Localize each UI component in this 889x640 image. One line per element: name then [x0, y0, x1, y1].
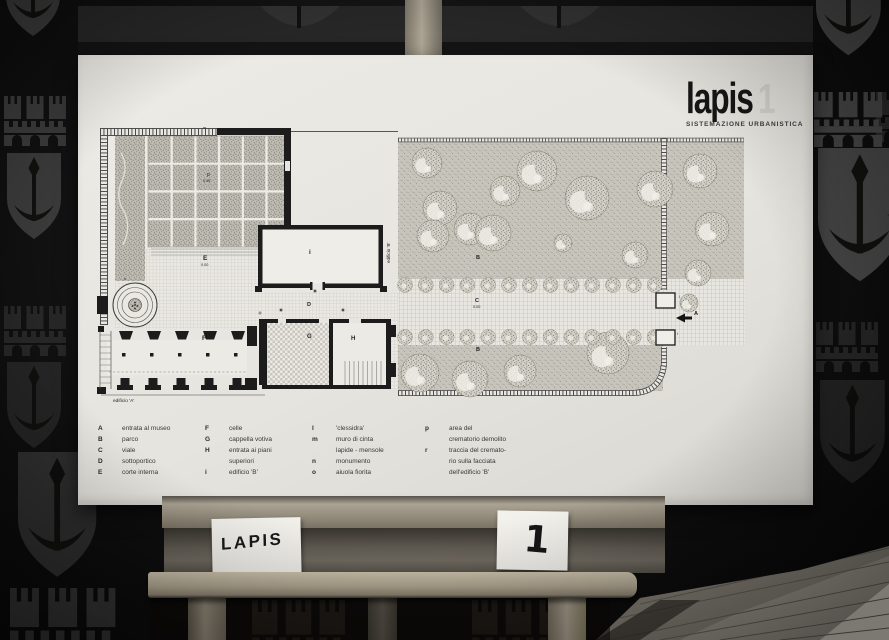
plan-label: i	[309, 250, 311, 257]
easel-leg-center	[368, 594, 397, 640]
plan-label: m	[203, 126, 206, 130]
legend-column: Aentrata al museoBparcoCvialeDsottoporti…	[98, 423, 204, 478]
legend-text: edificio 'B'	[229, 467, 258, 478]
legend-key: F	[205, 423, 229, 434]
plan-label: B	[476, 256, 480, 262]
legend-key: E	[98, 467, 122, 478]
legend: Aentrata al museoBparcoCvialeDsottoporti…	[98, 423, 798, 501]
plan-label: edificio 'B'	[387, 243, 392, 263]
label-card-lapis: LAPIS	[211, 517, 301, 574]
plan-label: l	[677, 333, 678, 337]
legend-key: m	[312, 434, 336, 456]
plan-label: n	[124, 278, 126, 282]
plan-label: E	[203, 256, 207, 263]
legend-row: Ecorte interna	[98, 467, 204, 478]
plan-label: l	[679, 296, 680, 300]
wallpaper-top-band	[78, 6, 813, 54]
plan-label: 0.00	[201, 264, 208, 268]
legend-row: l'clessidra'	[312, 423, 418, 434]
legend-text: monumento	[336, 456, 370, 467]
legend-text: parco	[122, 434, 138, 445]
legend-key: C	[98, 445, 122, 456]
legend-text: entrata al museo	[122, 423, 170, 434]
legend-text: corte interna	[122, 467, 158, 478]
legend-column: FcelleGcappella votivaHentrata ai piani …	[205, 423, 311, 478]
legend-key: G	[205, 434, 229, 445]
legend-row: Gcappella votiva	[205, 434, 311, 445]
legend-key: l	[312, 423, 336, 434]
plan-labels-layer: mp0.45E0.00iedificio 'B'DnFGHedificio 'A…	[95, 113, 745, 413]
photo-stage: lapis1 SISTEMAZIONE URBANISTICA	[0, 0, 889, 640]
legend-row: Cviale	[98, 445, 204, 456]
legend-key: A	[98, 423, 122, 434]
easel-leg-left	[188, 598, 226, 640]
legend-key: p	[425, 423, 449, 445]
legend-key: r	[425, 445, 449, 478]
heraldic-shield-column-right	[814, 0, 889, 483]
plan-label: C	[475, 299, 479, 305]
plan-label: 0.45	[203, 180, 210, 184]
plan-label: 0.00	[473, 306, 480, 310]
board-title-number: 1	[758, 79, 776, 119]
plan-label: A	[694, 312, 698, 318]
label-card-lapis-text: LAPIS	[221, 529, 284, 555]
plan-label: F	[202, 336, 206, 343]
legend-row: Aentrata al museo	[98, 423, 204, 434]
legend-key: H	[205, 445, 229, 467]
plan-label: H	[351, 336, 355, 342]
legend-text: sottoportico	[122, 456, 156, 467]
plan-label: G	[307, 334, 312, 340]
legend-text: 'clessidra'	[336, 423, 364, 434]
legend-key: n	[312, 456, 336, 467]
label-card-number: 1	[496, 510, 568, 570]
site-plan: mp0.45E0.00iedificio 'B'DnFGHedificio 'A…	[95, 113, 745, 413]
legend-row: Fcelle	[205, 423, 311, 434]
legend-row: parea del crematorio demolito	[425, 423, 531, 445]
legend-key: B	[98, 434, 122, 445]
legend-text: traccia del cremato- rio sulla facciata …	[449, 445, 506, 478]
easel-tray	[148, 572, 637, 598]
easel-top-post	[405, 0, 442, 57]
legend-text: muro di cinta lapide - mensole	[336, 434, 384, 456]
legend-key: i	[205, 467, 229, 478]
legend-text: entrata ai piani superiori	[229, 445, 272, 467]
plan-label: p	[207, 173, 210, 178]
legend-text: celle	[229, 423, 242, 434]
legend-text: area del crematorio demolito	[449, 423, 506, 445]
legend-row: rtraccia del cremato- rio sulla facciata…	[425, 445, 531, 478]
legend-row: Dsottoportico	[98, 456, 204, 467]
legend-row: oaiuola fiorita	[312, 467, 418, 478]
plan-label: edificio 'A'	[113, 400, 134, 405]
label-card-number-text: 1	[522, 517, 551, 562]
legend-text: aiuola fiorita	[336, 467, 371, 478]
legend-row: mmuro di cinta lapide - mensole	[312, 434, 418, 456]
plan-label: D	[307, 303, 311, 309]
legend-text: cappella votiva	[229, 434, 272, 445]
legend-column: parea del crematorio demolitortraccia de…	[425, 423, 531, 478]
presentation-board: lapis1 SISTEMAZIONE URBANISTICA	[78, 55, 813, 505]
legend-text: viale	[122, 445, 135, 456]
plan-label: B	[476, 348, 480, 354]
legend-row: Hentrata ai piani superiori	[205, 445, 311, 467]
legend-row: iedificio 'B'	[205, 467, 311, 478]
legend-key: D	[98, 456, 122, 467]
legend-column: l'clessidra'mmuro di cinta lapide - mens…	[312, 423, 418, 478]
legend-key: o	[312, 467, 336, 478]
legend-row: Bparco	[98, 434, 204, 445]
legend-row: nmonumento	[312, 456, 418, 467]
